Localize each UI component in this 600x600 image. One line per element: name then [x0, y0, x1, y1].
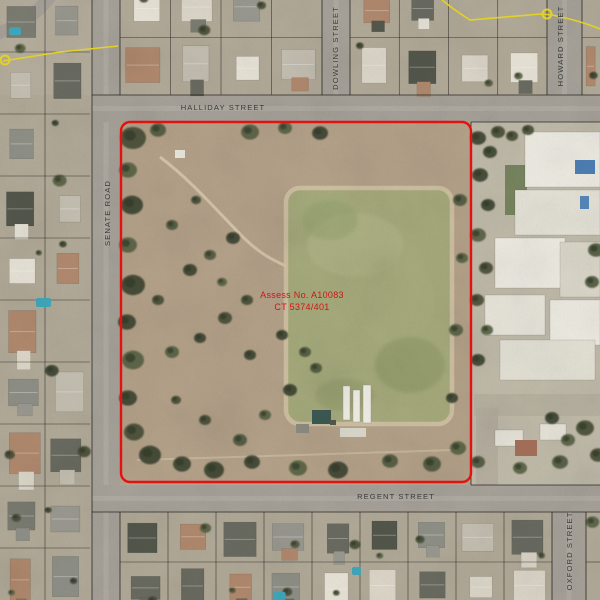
street-label-oxford: OXFORD STREET	[565, 512, 574, 591]
aerial-map: Assess No. A10083 CT 5374/401 HALLIDAY S…	[0, 0, 600, 600]
parcel-ct-label: CT 5374/401	[274, 302, 329, 312]
grain-overlay	[0, 0, 600, 600]
aerial-map-canvas[interactable]: Assess No. A10083 CT 5374/401 HALLIDAY S…	[0, 0, 600, 600]
street-label-howard: HOWARD STREET	[556, 6, 565, 87]
street-label-senate: SENATE ROAD	[103, 180, 112, 246]
street-label-halliday: HALLIDAY STREET	[181, 103, 266, 112]
parcel-assess-number-label: Assess No. A10083	[260, 290, 344, 300]
street-label-regent: REGENT STREET	[357, 492, 435, 501]
street-label-dowling: DOWLING STREET	[331, 6, 340, 90]
